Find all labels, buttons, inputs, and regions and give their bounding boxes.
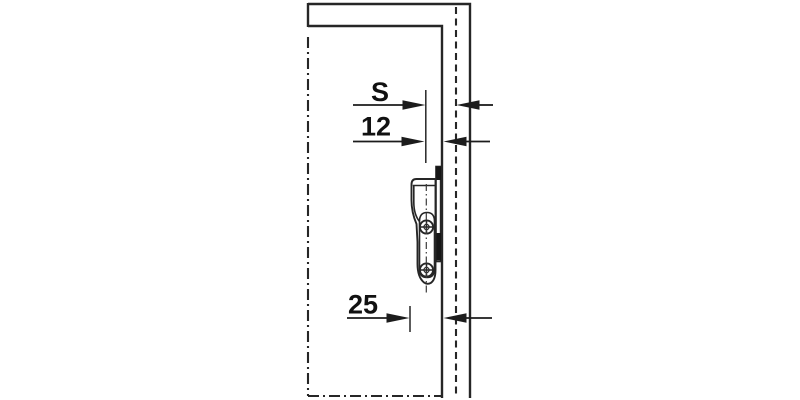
mounting-bracket (412, 167, 442, 294)
dimension-s-arrow-right-icon (403, 100, 426, 110)
installation-drawing: S 12 25 (0, 0, 800, 400)
dimension-25-arrow-right-icon (387, 313, 410, 323)
dimension-s-label: S (371, 77, 389, 107)
dimension-25-label: 25 (348, 290, 378, 320)
dimension-s: S (353, 77, 493, 110)
diagram-canvas: S 12 25 (0, 0, 800, 400)
top-panel (308, 3, 470, 398)
bracket-hook-bar-top-section (436, 167, 441, 181)
dimension-12-label: 12 (361, 112, 391, 142)
top-panel-outer-edge (308, 4, 470, 398)
dimension-12-arrow-right-icon (402, 137, 425, 147)
dimension-s-counter-arrow-icon (457, 100, 480, 110)
